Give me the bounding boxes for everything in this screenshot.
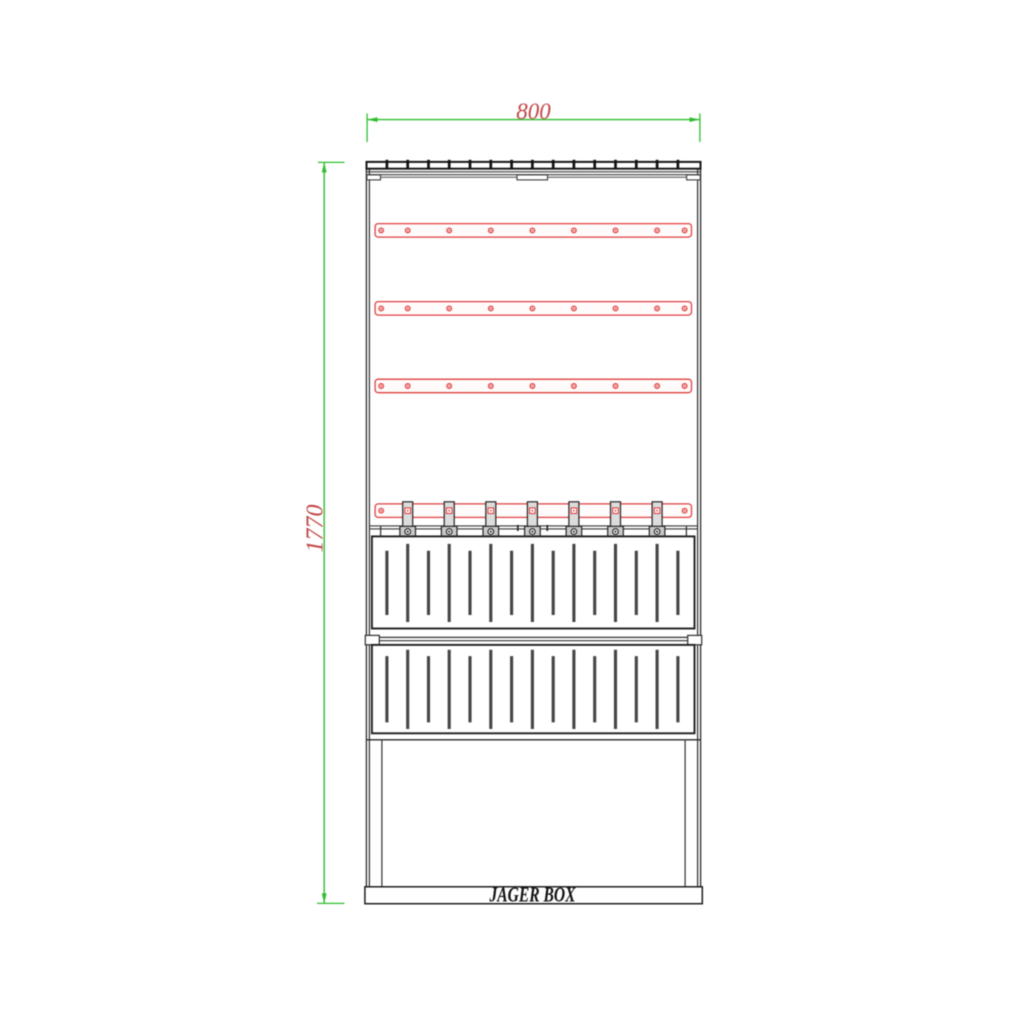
svg-text:800: 800 xyxy=(516,99,551,124)
svg-text:JAGER BOX: JAGER BOX xyxy=(489,882,576,906)
svg-text:1770: 1770 xyxy=(303,505,329,553)
